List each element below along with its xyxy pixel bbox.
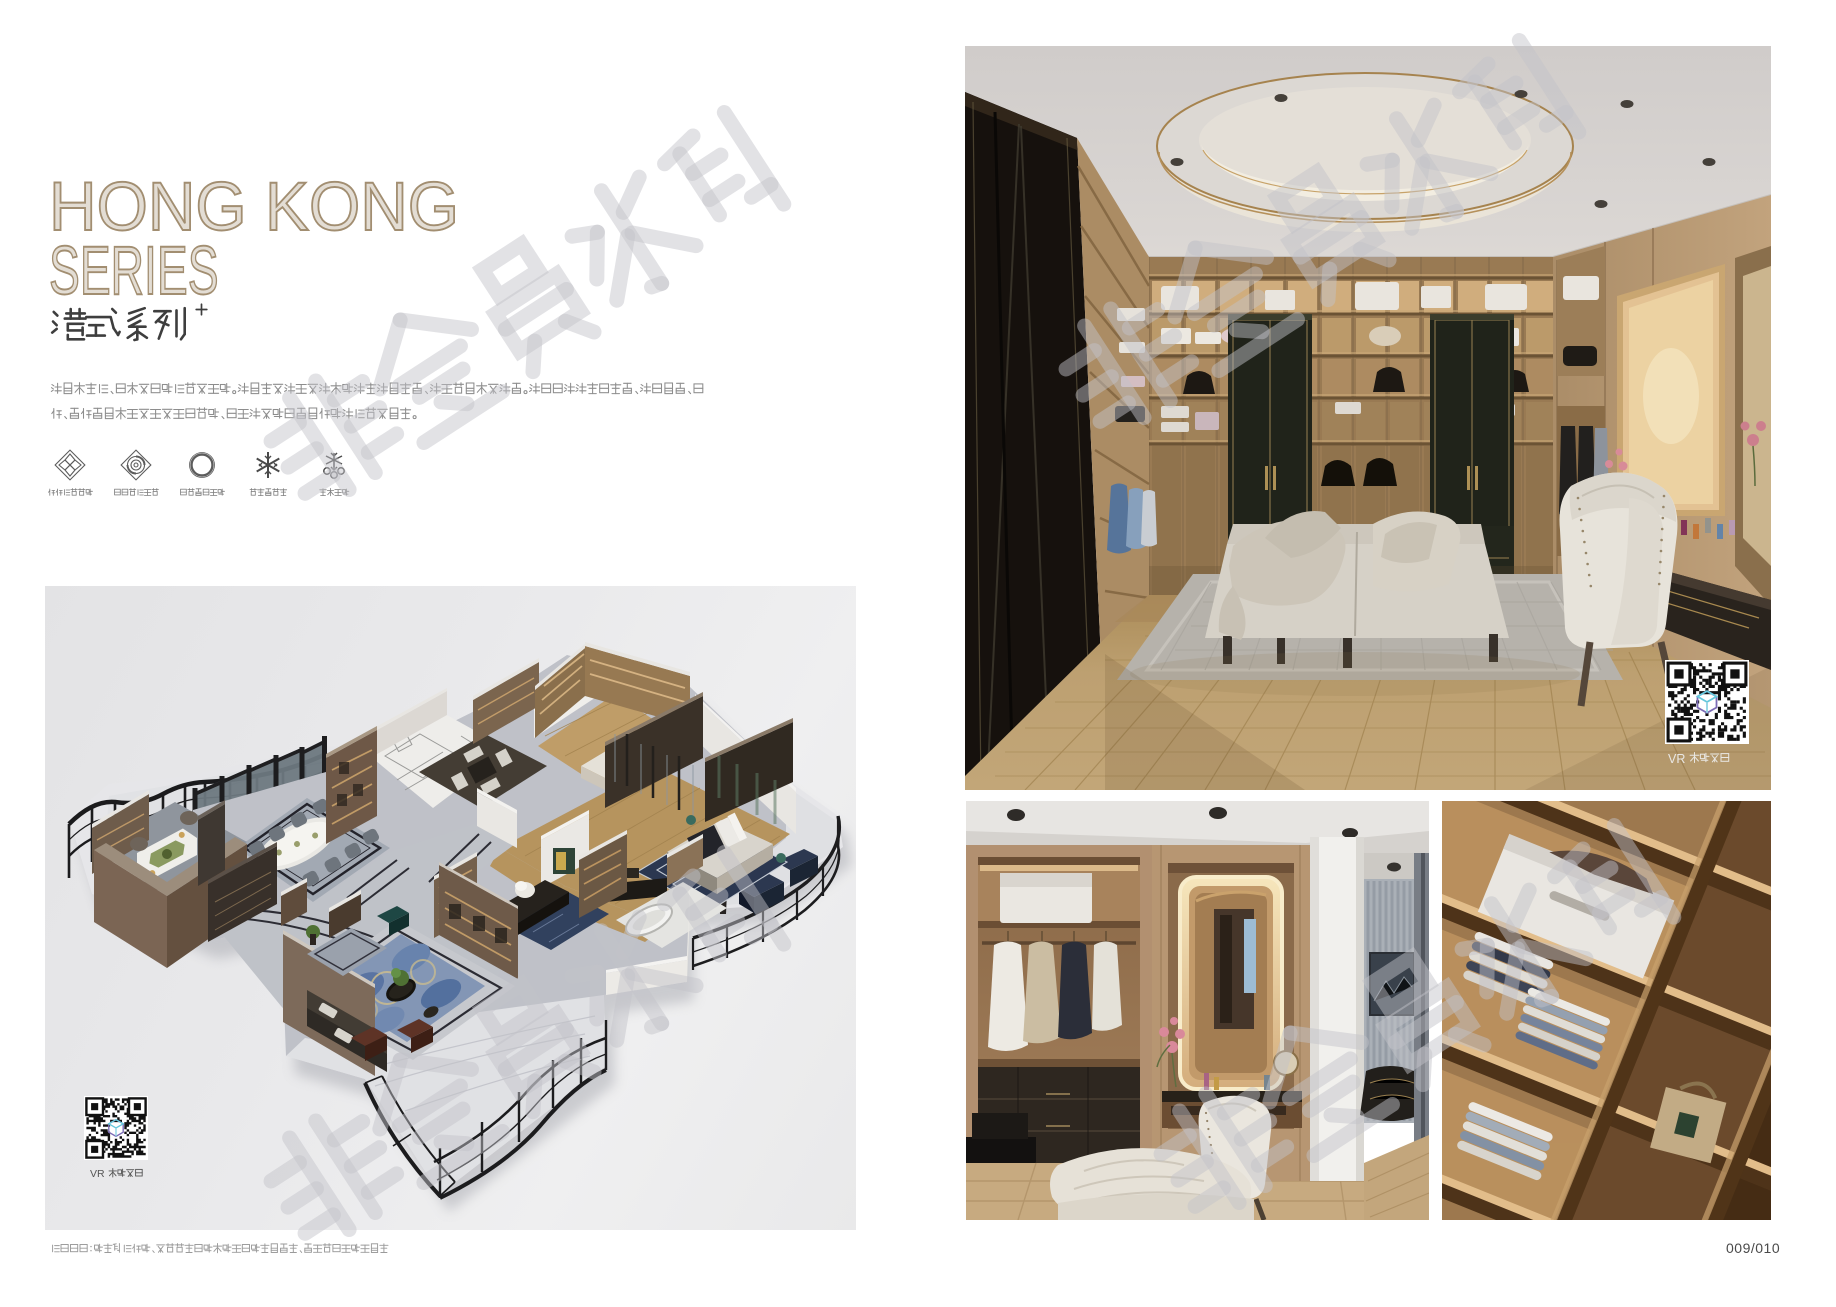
svg-text:VR: VR (1668, 752, 1685, 766)
svg-text:VR: VR (90, 1168, 105, 1180)
